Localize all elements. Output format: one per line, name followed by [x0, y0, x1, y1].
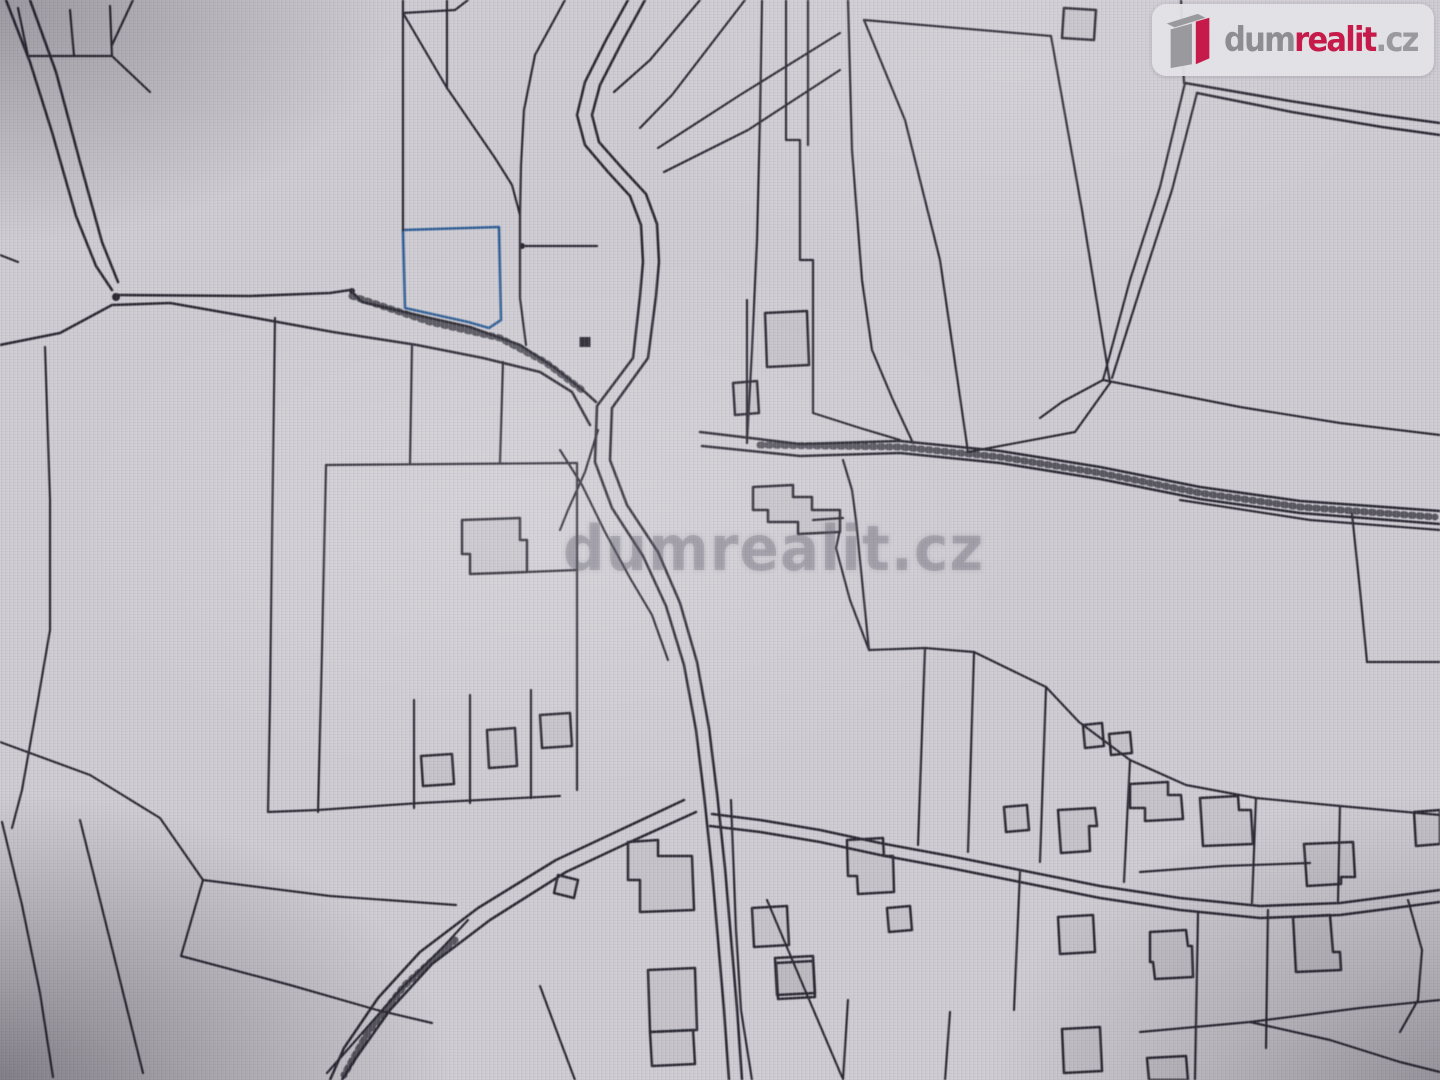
- parcel-boundary: [747, 0, 762, 443]
- road-embankment-hatch: [760, 445, 1435, 517]
- brand-badge[interactable]: dumrealit.cz: [1152, 4, 1434, 76]
- building-footprint: [1304, 842, 1355, 886]
- road-edge: [1185, 83, 1440, 123]
- map-junction-marker: [112, 293, 120, 301]
- map-junction-marker: [349, 288, 355, 294]
- parcel-boundary: [843, 460, 869, 650]
- parcel-boundary: [18, 6, 112, 56]
- building-footprint: [1058, 915, 1095, 954]
- parcel-boundary: [1140, 863, 1310, 872]
- parcel-boundary: [326, 463, 577, 465]
- building-footprint: [1414, 810, 1440, 846]
- building-footprint: [1130, 782, 1183, 821]
- parcel-boundary: [410, 346, 412, 463]
- building-footprint: [628, 840, 694, 912]
- parcel-boundary: [403, 13, 520, 215]
- parcel-boundary: [112, 56, 150, 92]
- parcel-boundary: [500, 362, 503, 463]
- building-footprint: [765, 311, 809, 367]
- building-footprint: [554, 875, 578, 898]
- map-junction-marker: [519, 243, 525, 249]
- parcel-boundary: [318, 465, 326, 812]
- parcel-boundary: [1266, 910, 1268, 1048]
- brand-part-cz: .cz: [1375, 20, 1417, 60]
- parcel-boundary: [614, 0, 700, 92]
- parcel-boundary: [864, 20, 1051, 36]
- parcel-boundary: [848, 0, 913, 443]
- brand-part-dum: dum: [1224, 20, 1294, 60]
- parcel-boundary: [1250, 1022, 1440, 1072]
- building-footprint: [1058, 808, 1097, 853]
- parcel-boundary: [945, 1012, 950, 1080]
- building-footprint: [752, 906, 789, 947]
- building-footprint: [1004, 805, 1029, 832]
- parcel-boundary: [1103, 83, 1185, 380]
- parcel-boundary: [1195, 912, 1198, 1080]
- building-footprint: [1200, 796, 1253, 846]
- parcel-boundary: [968, 383, 1110, 452]
- parcel-boundary: [731, 800, 752, 1080]
- parcel-boundary: [12, 347, 50, 828]
- parcel-boundary: [112, 0, 133, 45]
- building-footprint: [847, 838, 894, 894]
- building-footprint: [1062, 1027, 1102, 1073]
- cadastral-map-screenshot: dumrealit.cz dumrealit.cz: [0, 0, 1440, 1080]
- parcel-boundary: [813, 413, 900, 440]
- parcel-boundary: [640, 0, 745, 128]
- parcel-boundary: [1400, 900, 1422, 1032]
- building-footprint: [1293, 915, 1341, 972]
- parcel-boundary: [268, 318, 275, 812]
- building-footprint: [1150, 930, 1193, 979]
- building-footprint: [421, 754, 454, 786]
- building-footprint: [1147, 1056, 1188, 1080]
- building-footprint: [650, 1030, 695, 1066]
- parcel-boundary: [1040, 687, 1046, 862]
- building-footprint: [776, 961, 815, 999]
- brand-part-realit: realit: [1294, 20, 1375, 60]
- parcel-boundary: [0, 255, 18, 262]
- parcel-boundary: [1051, 36, 1110, 383]
- building-footprint: [1109, 732, 1132, 755]
- parcel-boundary: [968, 652, 974, 852]
- parcel-boundary: [918, 648, 925, 845]
- building-footprint: [753, 485, 840, 534]
- parcel-boundary: [1103, 380, 1440, 435]
- parcel-boundary: [864, 20, 968, 452]
- building-footprint: [1062, 8, 1096, 40]
- road-edge: [1197, 93, 1440, 135]
- parcel-boundary: [0, 742, 203, 880]
- parcel-boundary: [403, 0, 468, 13]
- parcel-boundary: [1112, 93, 1197, 378]
- building-footprint: [648, 968, 697, 1032]
- building-footprint: [1083, 723, 1104, 748]
- dumrealit-house-icon: [1165, 10, 1215, 70]
- map-junction-marker: [580, 337, 591, 347]
- parcel-boundary: [80, 820, 143, 1073]
- road-edge: [592, 0, 742, 1080]
- building-footprint: [733, 381, 759, 415]
- parcel-boundary: [2, 822, 53, 1077]
- parcel-boundary: [70, 10, 74, 56]
- road-edge: [6, 0, 112, 290]
- brand-wordmark: dumrealit.cz: [1224, 20, 1418, 60]
- parcel-boundary: [1014, 872, 1020, 1010]
- parcel-boundary: [1352, 514, 1367, 662]
- parcel-boundary: [658, 33, 840, 148]
- parcel-boundary: [520, 0, 565, 345]
- parcel-boundary: [664, 70, 840, 172]
- building-footprint: [540, 713, 572, 748]
- parcel-boundary: [1040, 380, 1103, 418]
- road-edge: [30, 0, 118, 282]
- parcel-boundary: [1124, 760, 1130, 882]
- building-footprint: [487, 728, 517, 768]
- parcel-boundary: [1140, 1000, 1440, 1032]
- building-footprint: [462, 518, 527, 574]
- parcel-boundary: [527, 570, 577, 572]
- parcel-boundary: [843, 1000, 848, 1080]
- parcel-boundary: [540, 986, 575, 1080]
- cadastral-map-svg[interactable]: [0, 0, 1440, 1080]
- parcel-boundary: [1252, 798, 1256, 903]
- highlighted-parcel[interactable]: [403, 227, 501, 328]
- road-edge: [577, 0, 729, 1080]
- building-footprint: [887, 906, 912, 932]
- parcel-boundary: [203, 880, 456, 905]
